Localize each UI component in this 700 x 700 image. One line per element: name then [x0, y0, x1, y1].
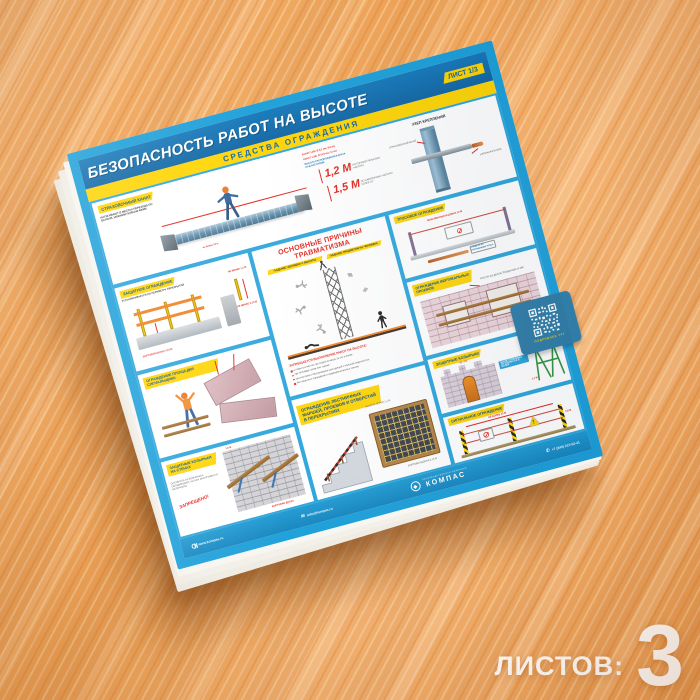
guard-dim-line-1: [242, 279, 248, 299]
beam-endplate-right: [294, 194, 312, 211]
footer-phone: ✆ +7 (845) 215-52-41: [545, 439, 580, 454]
qr-code-icon: [528, 303, 562, 337]
worker-icon: [212, 181, 247, 226]
footer-phone-text: +7 (845) 215-52-41: [551, 440, 580, 451]
visor-note-chip: ВЫЛЕТ КОЗЫРЬКА ОТ СТЕНЫ 2 М И БОЛЕЕ: [498, 354, 529, 369]
footer-website-text: www.kompas.ru: [198, 536, 224, 547]
anchor-leader-2: [472, 148, 479, 154]
no-entry-icon: [456, 227, 462, 233]
mesh-grid: [373, 403, 436, 463]
poster-pad: БЕЗОПАСНОСТЬ РАБОТ НА ВЫСОТЕ ЛИСТ 1/3 СР…: [67, 40, 603, 569]
sheets-caption: ЛИСТОВ: 3: [495, 621, 684, 692]
guard-post-4: [234, 279, 243, 301]
sheet-number-badge: ЛИСТ 1/3: [441, 62, 485, 84]
anchor-rope-end: [471, 141, 484, 148]
sheets-count: 3: [636, 621, 684, 692]
anchor-note-1: СТРАХОВОЧНЫЙ КАНАТ: [389, 139, 419, 150]
floor-opening-cover: [370, 400, 440, 467]
globe-icon: [191, 543, 197, 549]
no-pedestrians-icon: [483, 431, 490, 438]
rope-length-note: не более 12 м: [202, 242, 218, 249]
stairs-icon: [309, 429, 377, 496]
mail-icon: ✉: [300, 513, 305, 520]
signal-sign-warning: [528, 415, 540, 426]
openings-leader: [470, 285, 480, 286]
dim-arrow-2: [327, 186, 332, 202]
signal-sign-noentry: [478, 428, 495, 443]
product-photo-scene: БЕЗОПАСНОСТЬ РАБОТ НА ВЫСОТЕ ЛИСТ 1/3 СР…: [0, 0, 700, 700]
falling-figure-2: [293, 302, 308, 317]
guard-caption: БОРТОВАЯ ДОСКА 0,15 М: [143, 348, 173, 359]
standing-figure: [373, 309, 390, 330]
phone-icon: ✆: [545, 447, 550, 454]
cable-post-right: [502, 207, 512, 233]
footer-email: ✉ info@kompas.ru: [300, 506, 333, 520]
falling-debris-2: [359, 284, 372, 297]
sheets-label: ЛИСТОВ:: [495, 651, 625, 692]
forbidden-text: ЗАПРЕЩЕНО!: [178, 494, 209, 510]
guard-dim-1: НЕ МЕНЕЕ 1,1 М: [227, 265, 249, 274]
height-1-2m: 1,2 М: [324, 162, 353, 180]
falling-figure-3: [315, 322, 328, 335]
stairs-illustration: [309, 429, 377, 496]
falling-debris-1: [344, 270, 356, 282]
height-1-5m-caption: ПО НАКЛОННОМУ НАСТИЛУ БОЛЕЕ 20°: [361, 171, 395, 186]
footer-website: www.kompas.ru: [191, 535, 224, 548]
cable-post-left: [408, 232, 418, 258]
height-1-5m: 1,5 М: [332, 179, 361, 197]
visor-angle: 70°–75°: [459, 360, 468, 365]
anchor-leader-1: [417, 142, 425, 144]
worker-figure: [212, 181, 247, 226]
warning-triangle-icon: [528, 415, 540, 426]
guard-dim-2: НЕ МЕНЕЕ 0,15 М: [237, 300, 259, 309]
anchor-note-2: НАТЯЖНАЯ МУФТА: [480, 146, 508, 156]
signal-dim-2: 0,8 М: [565, 408, 572, 413]
footer-email-text: info@kompas.ru: [306, 507, 333, 518]
hoisted-panel-2: [219, 397, 277, 424]
falling-figure-1: [294, 278, 311, 295]
guard-dim-line-2: [155, 323, 159, 333]
height-1-2m-caption: ПО ГОРИЗОНТАЛЬНОМУ НАСТИЛУ: [352, 155, 386, 170]
compass-logo-icon: [409, 480, 421, 492]
dim-arrow-1: [318, 169, 323, 183]
crane-sling-2: [233, 354, 234, 370]
